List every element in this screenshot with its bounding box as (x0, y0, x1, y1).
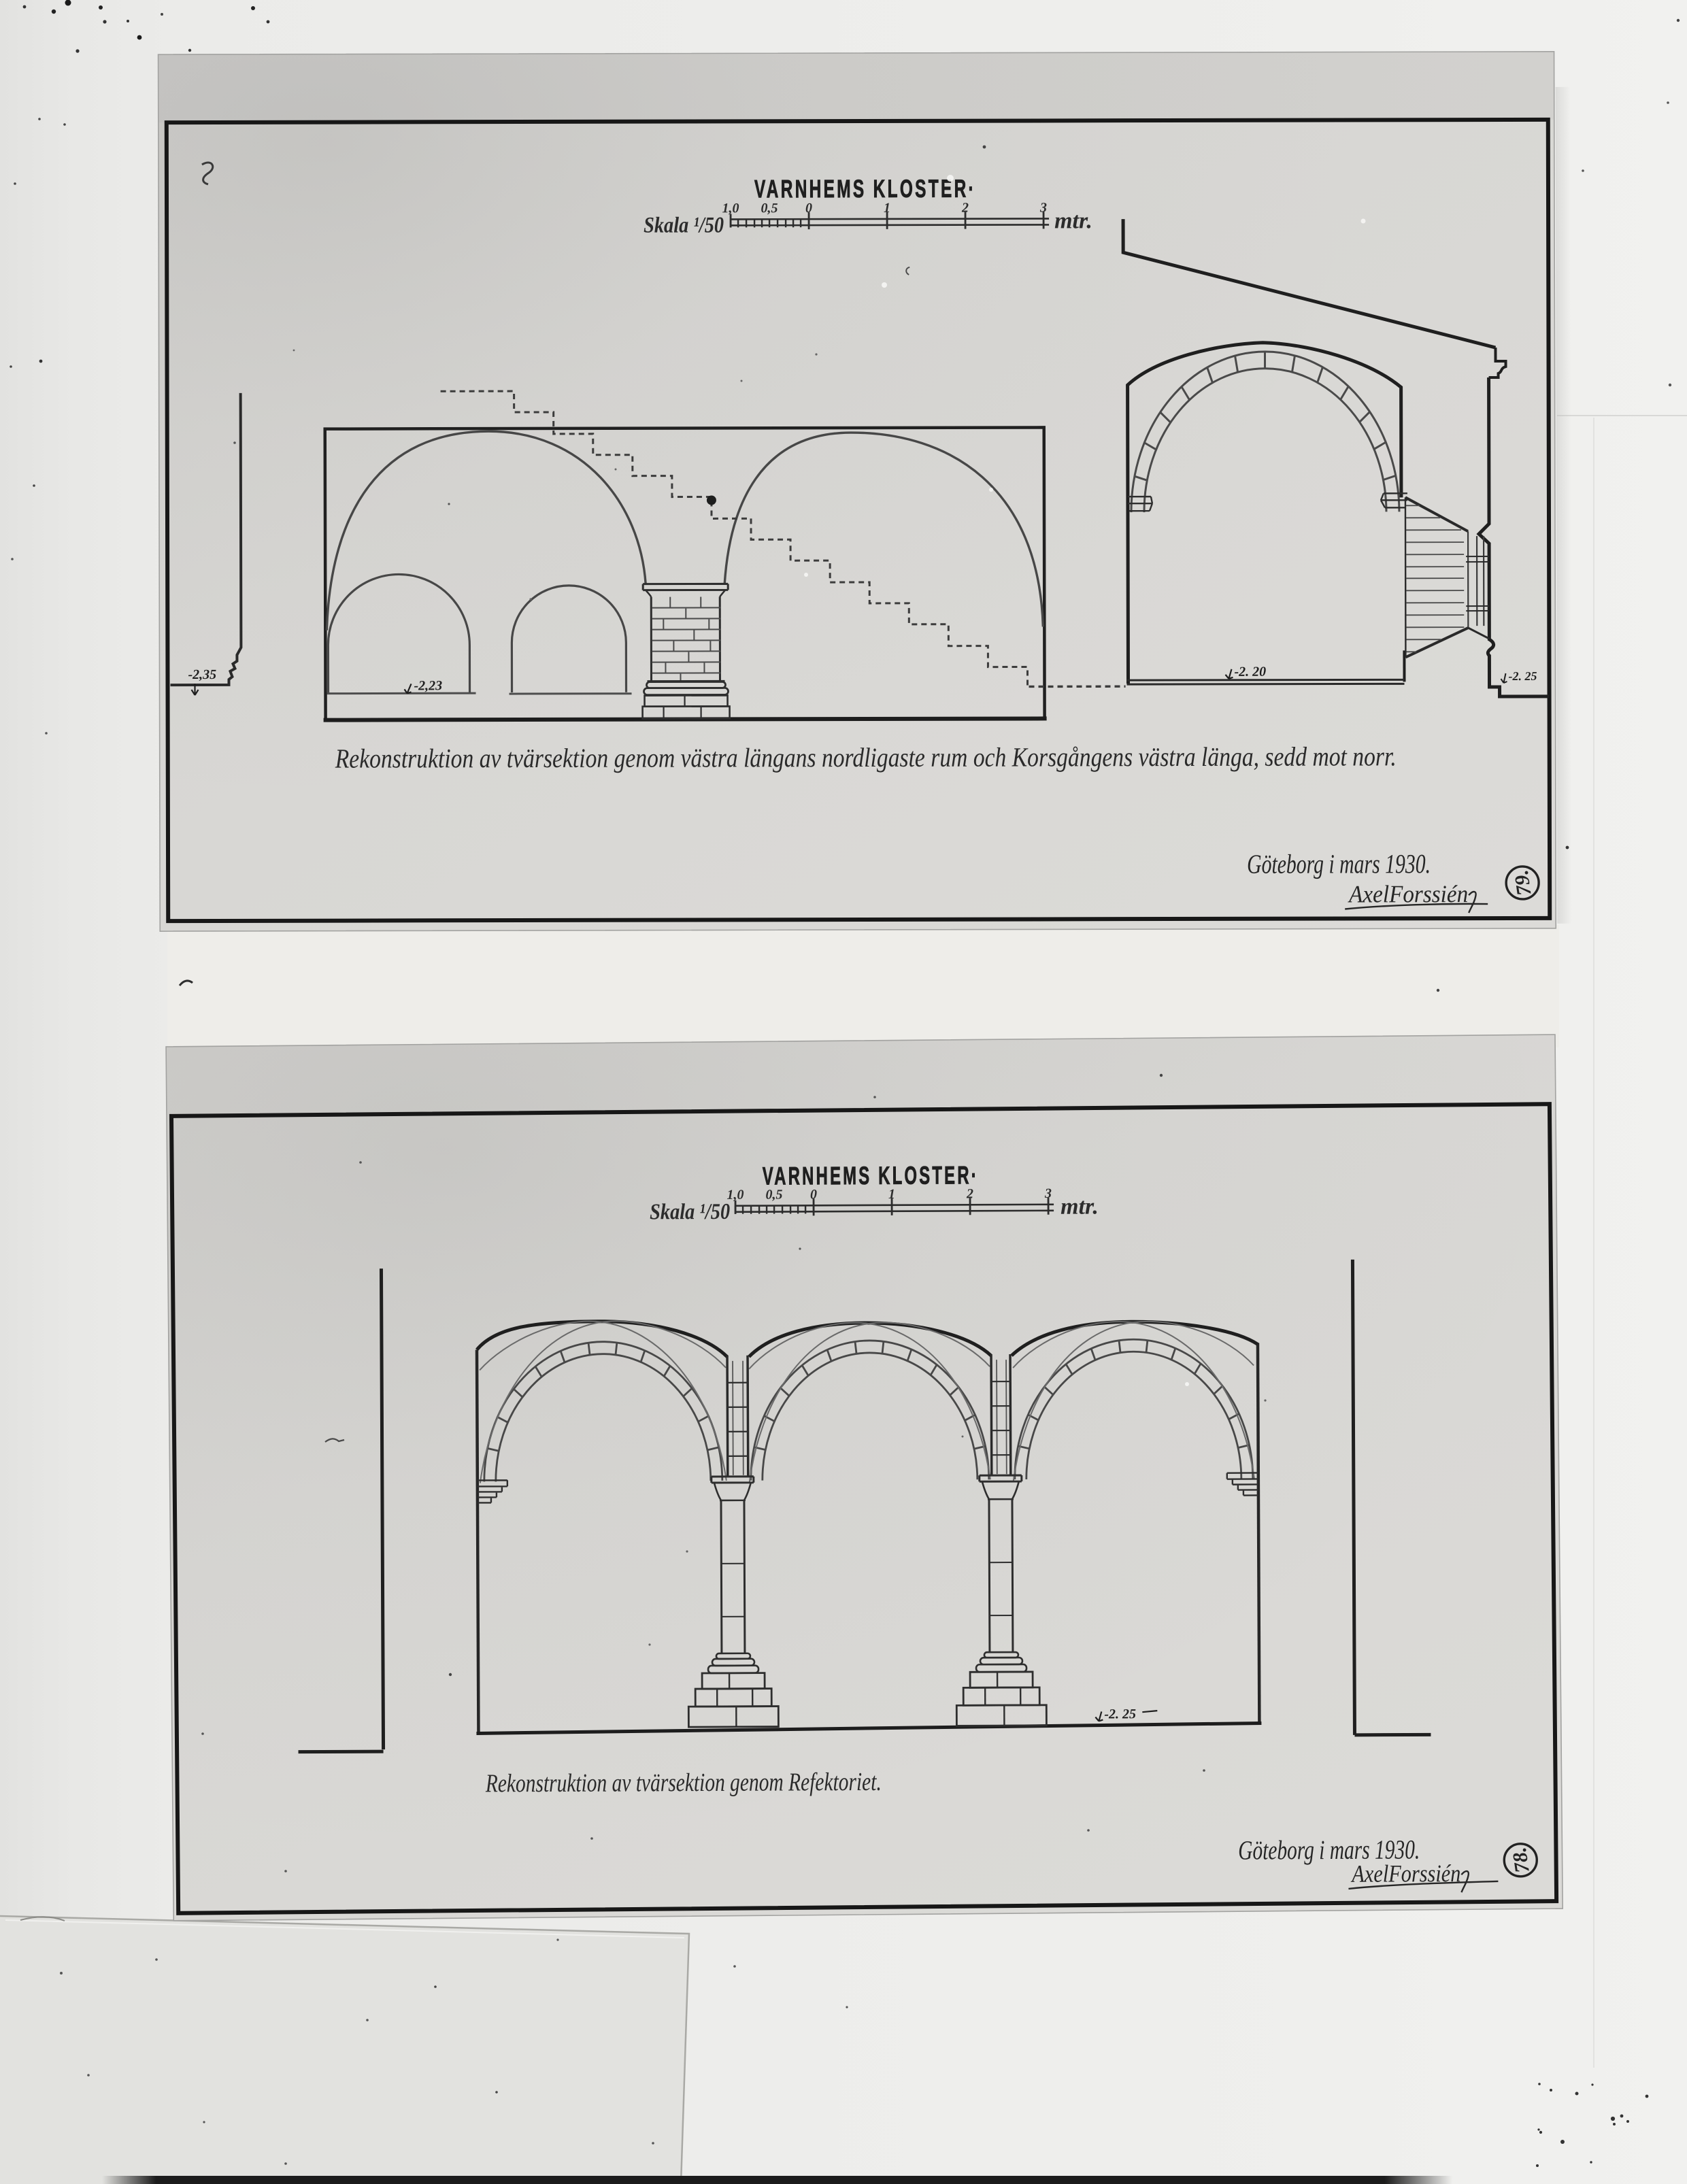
svg-text:2: 2 (966, 1186, 973, 1201)
svg-text:Skala ¹/50: Skala ¹/50 (644, 213, 724, 237)
svg-text:0,5: 0,5 (761, 201, 778, 216)
svg-text:1: 1 (884, 201, 890, 216)
svg-text:Rekonstruktion av tvärsektion: Rekonstruktion av tvärsektion genom väst… (335, 741, 1397, 773)
svg-text:79.: 79. (1510, 869, 1536, 897)
svg-text:1: 1 (888, 1187, 895, 1202)
svg-text:Göteborg i mars 1930.: Göteborg i mars 1930. (1247, 848, 1431, 879)
svg-text:1,0: 1,0 (726, 1188, 744, 1203)
svg-text:Skala ¹/50: Skala ¹/50 (650, 1200, 730, 1225)
svg-text:-2. 25: -2. 25 (1508, 669, 1537, 683)
svg-text:78.: 78. (1508, 1846, 1534, 1875)
svg-text:2: 2 (961, 201, 969, 216)
svg-text:VARNHEMS KLOSTER·: VARNHEMS KLOSTER· (763, 1161, 979, 1190)
svg-text:0: 0 (810, 1187, 817, 1202)
svg-text:Rekonstruktion av tvärsektion: Rekonstruktion av tvärsektion genom Refe… (485, 1768, 882, 1798)
svg-text:VARNHEMS KLOSTER·: VARNHEMS KLOSTER· (754, 175, 976, 203)
svg-text:mtr.: mtr. (1060, 1194, 1099, 1219)
svg-text:1,0: 1,0 (722, 201, 739, 216)
svg-text:3: 3 (1044, 1186, 1052, 1201)
svg-text:-2,23: -2,23 (414, 678, 442, 693)
svg-text:-2,35: -2,35 (188, 667, 216, 682)
svg-text:3: 3 (1039, 200, 1047, 215)
svg-text:-2. 25: -2. 25 (1104, 1707, 1136, 1721)
svg-text:mtr.: mtr. (1054, 208, 1092, 233)
svg-text:-2. 20: -2. 20 (1234, 665, 1266, 679)
svg-text:0: 0 (805, 201, 812, 216)
svg-text:0,5: 0,5 (765, 1188, 782, 1203)
